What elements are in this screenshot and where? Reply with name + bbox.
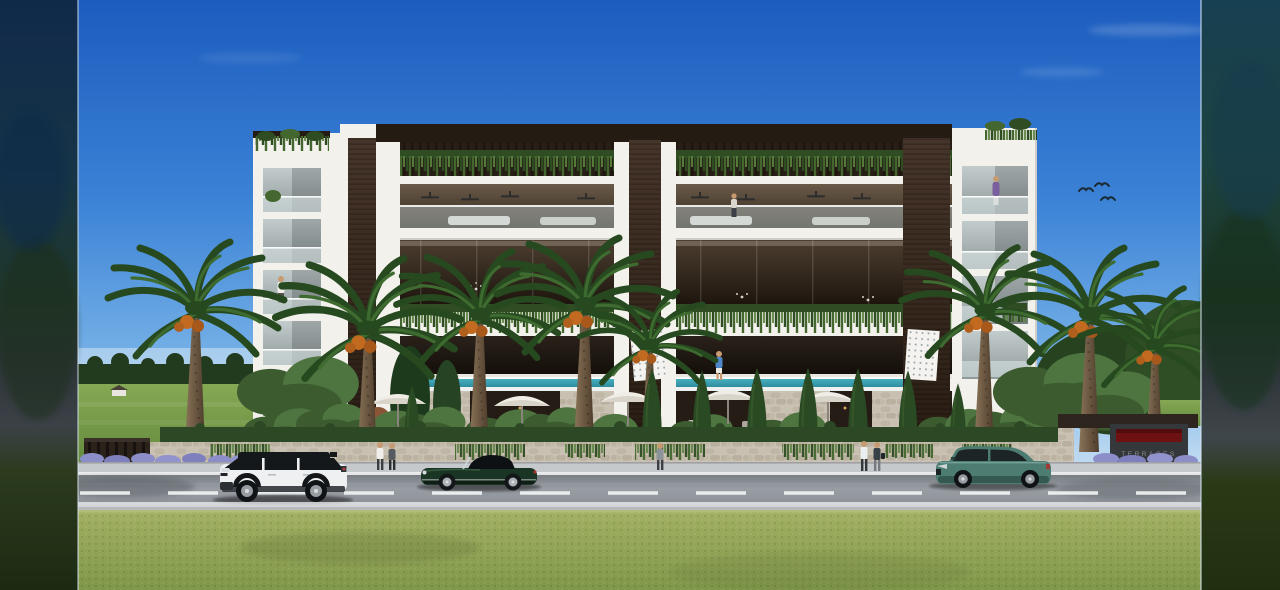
roof-band — [376, 124, 952, 142]
grass-foreground — [78, 510, 1201, 590]
rear-spoiler — [330, 452, 337, 457]
bag — [881, 453, 885, 459]
blur-band-left — [0, 0, 79, 590]
architectural-render: TERRACES — [0, 0, 1280, 590]
mirror — [951, 457, 955, 460]
scene-canvas: TERRACES — [0, 0, 1280, 590]
taillight — [534, 471, 537, 474]
grass-shade-patch — [240, 532, 480, 564]
grille — [221, 473, 228, 476]
wheel — [505, 474, 522, 491]
blur-band-right — [1200, 0, 1280, 590]
cloud — [198, 52, 302, 64]
taillight — [1046, 464, 1050, 469]
tower-balcony — [263, 168, 321, 212]
mow-strip — [78, 402, 255, 407]
band-edge-line — [77, 0, 79, 590]
grille — [936, 469, 941, 475]
front-bumper — [220, 482, 233, 490]
perforated-panel — [904, 329, 939, 381]
mirror — [241, 462, 246, 465]
band-edge-line — [1200, 0, 1202, 590]
mow-strip — [78, 420, 255, 425]
headlight — [423, 471, 427, 475]
balcony-person — [731, 193, 737, 217]
balcony-plant — [265, 190, 281, 202]
cloud — [1020, 67, 1104, 77]
taillight — [343, 468, 346, 471]
wheel — [954, 470, 972, 488]
entrance-pillar — [1058, 428, 1074, 466]
wheel — [439, 474, 456, 491]
wheel — [1021, 470, 1039, 488]
headlight — [221, 468, 230, 472]
lane-marking-edge-near — [78, 502, 1201, 505]
tower-balcony — [962, 166, 1028, 214]
tree-shadow — [1055, 479, 1215, 499]
car-windows — [222, 458, 344, 470]
cloud — [1088, 24, 1212, 36]
tower-balcony — [263, 219, 321, 263]
